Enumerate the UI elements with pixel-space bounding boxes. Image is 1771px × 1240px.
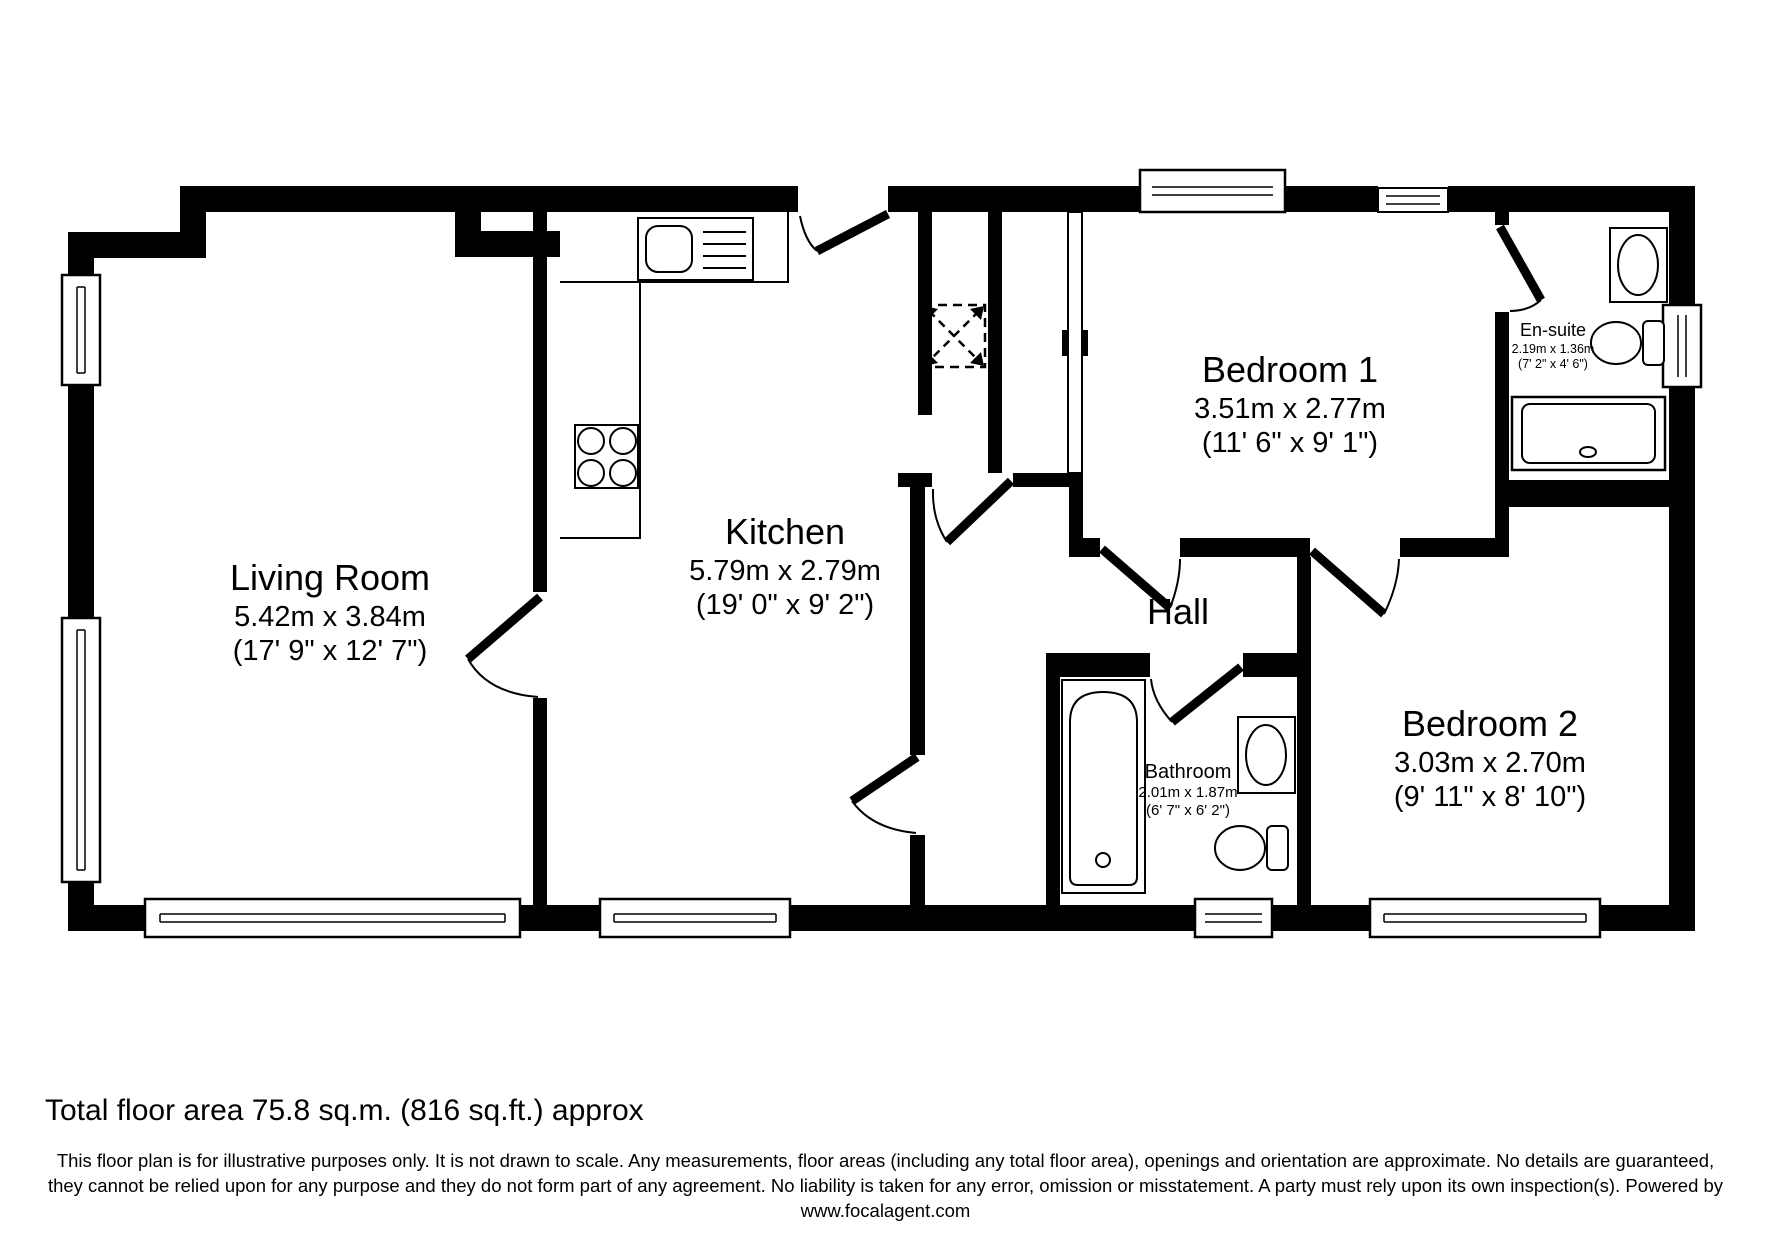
window-bedroom1-top (1140, 170, 1285, 212)
room-name: Bathroom (1138, 760, 1237, 784)
ensuite-shower-icon (1512, 397, 1665, 470)
bathroom-label: Bathroom 2.01m x 1.87m (6' 7" x 6' 2") (1138, 760, 1237, 820)
total-floor-area: Total floor area 75.8 sq.m. (816 sq.ft.)… (45, 1094, 644, 1128)
kitchen-label: Kitchen 5.79m x 2.79m (19' 0" x 9' 2") (689, 510, 881, 622)
room-name: Living Room (230, 556, 430, 600)
door-entrance-top (800, 214, 888, 251)
window-bathroom-bottom (1195, 899, 1272, 937)
window-ensuite-right (1663, 305, 1701, 387)
bathroom-toilet-icon (1215, 826, 1288, 870)
door-bathroom (1151, 667, 1241, 722)
internal-partition (1068, 212, 1082, 473)
room-name: Bedroom 1 (1194, 348, 1386, 392)
room-dimensions-metric: 5.42m x 3.84m (230, 600, 430, 634)
room-dimensions-metric: 3.51m x 2.77m (1194, 392, 1386, 426)
room-dimensions-metric: 2.19m x 1.36m (1512, 342, 1595, 357)
room-name: Kitchen (689, 510, 881, 554)
doors (468, 214, 1541, 833)
room-dimensions-imperial: (6' 7" x 6' 2") (1138, 802, 1237, 820)
disclaimer-line-1: This floor plan is for illustrative purp… (0, 1150, 1771, 1172)
room-dimensions-imperial: (11' 6" x 9' 1") (1194, 426, 1386, 460)
floor-plan-page: Living Room 5.42m x 3.84m (17' 9" x 12' … (0, 0, 1771, 1240)
window-bedroom2-bottom (1370, 899, 1600, 937)
door-ensuite (1500, 227, 1541, 311)
door-bedroom2 (1312, 551, 1399, 614)
bedroom2-label: Bedroom 2 3.03m x 2.70m (9' 11" x 8' 10"… (1394, 702, 1586, 814)
door-living-kitchen (468, 597, 540, 697)
window-living-bottom (145, 899, 520, 937)
kitchen-sink-icon (638, 218, 753, 280)
window-top-small (1378, 188, 1448, 212)
room-dimensions-imperial: (17' 9" x 12' 7") (230, 634, 430, 668)
window-kitchen-bottom (600, 899, 790, 937)
door-kitchen-hall (852, 757, 917, 833)
window-living-left-upper (62, 275, 100, 385)
ensuite-toilet-icon (1591, 321, 1664, 365)
room-name: Hall (1147, 590, 1209, 634)
loft-hatch-icon (923, 305, 985, 367)
room-dimensions-metric: 5.79m x 2.79m (689, 554, 881, 588)
ensuite-basin-icon (1610, 228, 1667, 302)
hall-label: Hall (1147, 590, 1209, 634)
room-name: Bedroom 2 (1394, 702, 1586, 746)
bath-icon (1062, 680, 1145, 893)
disclaimer-line-2: they cannot be relied upon for any purpo… (0, 1175, 1771, 1197)
room-dimensions-metric: 3.03m x 2.70m (1394, 746, 1586, 780)
bedroom1-label: Bedroom 1 3.51m x 2.77m (11' 6" x 9' 1") (1194, 348, 1386, 460)
window-living-left-lower (62, 618, 100, 882)
bathroom-basin-icon (1238, 717, 1295, 793)
living-room-label: Living Room 5.42m x 3.84m (17' 9" x 12' … (230, 556, 430, 668)
room-dimensions-imperial: (19' 0" x 9' 2") (689, 588, 881, 622)
room-name: En-suite (1512, 320, 1595, 342)
stove-hob-icon (575, 425, 638, 488)
room-dimensions-metric: 2.01m x 1.87m (1138, 784, 1237, 802)
room-dimensions-imperial: (7' 2" x 4' 6") (1512, 357, 1595, 372)
door-vestibule-hall (933, 481, 1011, 542)
room-dimensions-imperial: (9' 11" x 8' 10") (1394, 780, 1586, 814)
ensuite-label: En-suite 2.19m x 1.36m (7' 2" x 4' 6") (1512, 320, 1595, 371)
website-link: www.focalagent.com (0, 1200, 1771, 1222)
